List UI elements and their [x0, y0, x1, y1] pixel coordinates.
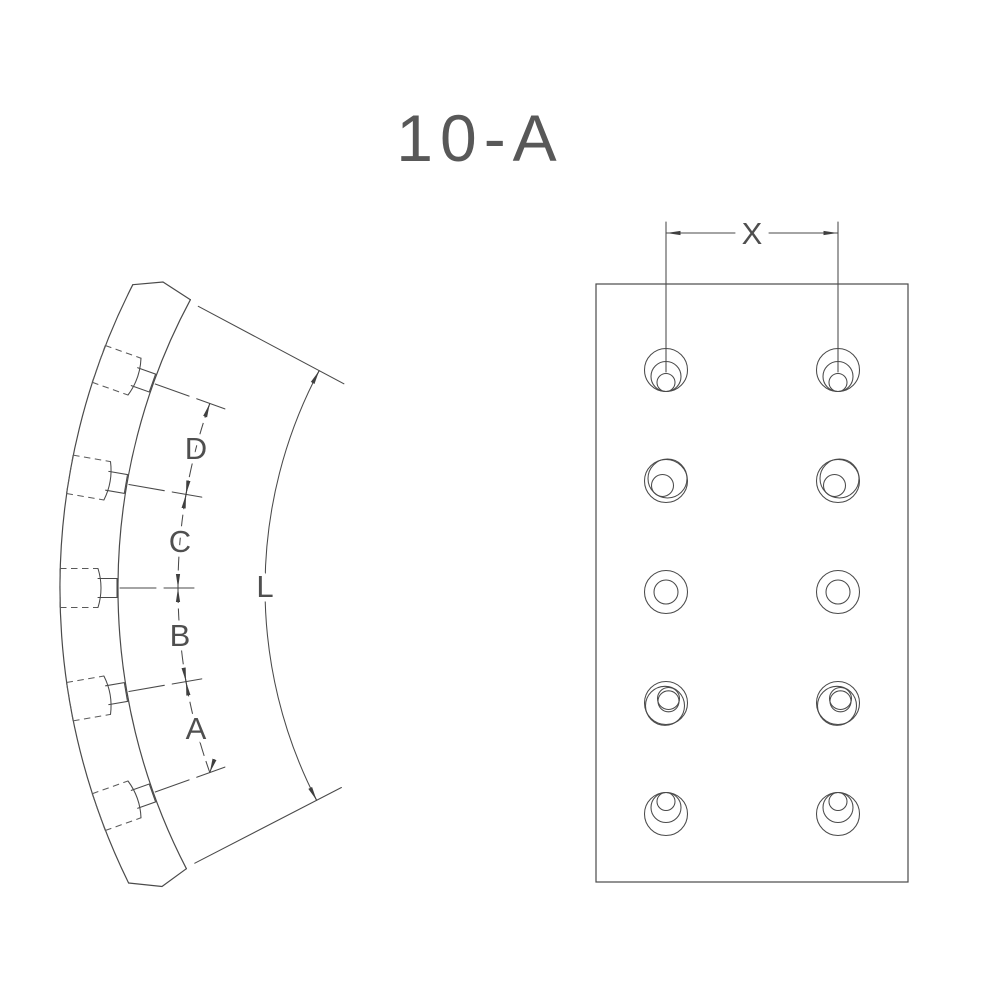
rivet-hole-1	[92, 346, 225, 409]
hole-column-left	[645, 349, 688, 836]
hole-circle	[817, 571, 860, 614]
dimension-label-B: B	[170, 618, 191, 653]
dimension-arrow	[310, 788, 316, 800]
hole-circle	[818, 686, 857, 725]
countersink-bottom	[104, 676, 111, 714]
hole-neck	[106, 683, 128, 705]
dimension-label-X: X	[742, 216, 763, 251]
dimension-label-A: A	[186, 711, 207, 746]
hole-hidden-edge	[105, 818, 141, 831]
hole-r3c2	[817, 571, 860, 614]
hole-r3c1	[645, 571, 688, 614]
hole-centerline	[129, 685, 164, 691]
dimension-arrow	[313, 371, 320, 383]
drawing-sheet: 10-A	[0, 0, 1000, 1000]
outer-arc	[60, 285, 133, 883]
dimension-arrow	[205, 404, 210, 417]
hole-centerline	[129, 485, 164, 491]
hole-r4c1	[645, 682, 688, 726]
part-number-title: 10-A	[396, 101, 563, 175]
dimension-arrow	[186, 682, 188, 696]
hole-circle	[658, 691, 679, 712]
rivet-hole-3	[60, 569, 194, 608]
countersink-bottom	[104, 462, 111, 500]
hole-circle	[657, 374, 675, 392]
hole-r4c2	[817, 682, 860, 726]
hole-r5c1	[645, 793, 688, 836]
hole-circle	[645, 793, 688, 836]
hole-hidden-edge	[73, 455, 110, 462]
hole-hidden-edge	[67, 676, 104, 683]
hole-hidden-edge	[73, 714, 110, 721]
hole-hidden-edge	[67, 494, 104, 501]
hole-circle	[824, 475, 846, 497]
hole-circle	[817, 793, 860, 836]
hole-circle	[657, 793, 675, 811]
technical-drawing: 10-A	[0, 0, 1000, 1000]
bottom-end-edge	[129, 869, 187, 887]
hole-neck	[106, 471, 128, 493]
dimension-arrow	[186, 481, 188, 495]
hole-circle	[645, 571, 688, 614]
hole-circle	[652, 475, 674, 497]
hole-hidden-edge	[92, 781, 128, 794]
hole-circle	[826, 580, 850, 604]
side-view: D C B A L	[60, 282, 344, 887]
hole-centerline	[172, 492, 202, 497]
hole-circle	[823, 793, 853, 823]
rivet-hole-4	[67, 676, 202, 721]
hole-circle	[654, 580, 678, 604]
hole-centerline	[155, 384, 189, 396]
hole-hidden-edge	[105, 346, 141, 359]
dimension-label-L: L	[256, 569, 273, 604]
countersink-bottom	[128, 781, 141, 818]
extension-line-bottom	[195, 788, 342, 864]
dimension-label-D: D	[185, 431, 207, 466]
countersink-bottom	[98, 569, 101, 608]
hole-circle	[646, 686, 685, 725]
plan-view: X	[596, 216, 908, 882]
top-end-edge	[133, 282, 191, 300]
arc-length-dimension: L	[195, 306, 344, 863]
dimension-label-C: C	[169, 524, 191, 559]
rivet-hole-2	[67, 455, 202, 500]
hole-r2c2	[817, 459, 860, 503]
dimension-arrow	[184, 668, 186, 682]
hole-spacing-dimension: X	[666, 216, 838, 372]
countersink-bottom	[128, 358, 141, 395]
hole-circle	[830, 691, 851, 712]
hole-centerline	[197, 399, 225, 409]
hole-circle	[829, 374, 847, 392]
rivet-hole-5	[92, 767, 225, 830]
extension-line-top	[198, 306, 344, 384]
hole-circle	[829, 793, 847, 811]
hole-centerline	[155, 780, 189, 792]
hole-centerline	[172, 679, 202, 684]
hole-r5c2	[817, 793, 860, 836]
hole-column-right	[817, 349, 860, 836]
dimension-arrow	[184, 494, 186, 508]
hole-circle	[651, 793, 681, 823]
hole-r2c1	[645, 459, 688, 503]
hole-hidden-edge	[92, 382, 128, 395]
lining-outline	[596, 284, 908, 882]
